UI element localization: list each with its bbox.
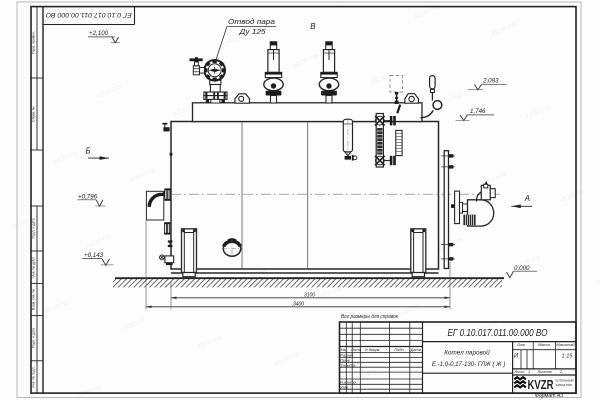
svg-text:Отвод пара: Отвод пара bbox=[228, 17, 275, 26]
svg-text:3100: 3100 bbox=[304, 292, 315, 298]
svg-text:Котел паровой: Котел паровой bbox=[444, 349, 490, 357]
svg-text:ЗАВОД РЭП: ЗАВОД РЭП bbox=[556, 383, 573, 387]
svg-text:Дата: Дата bbox=[410, 347, 422, 352]
svg-text:Изм: Изм bbox=[339, 347, 347, 352]
svg-text:+2,100: +2,100 bbox=[89, 30, 109, 37]
svg-text:0,000: 0,000 bbox=[514, 265, 530, 272]
svg-text:Перв. примен.: Перв. примен. bbox=[31, 31, 35, 54]
svg-text:Е -1,0-0,17-130- ГЛЖ ( Ж ): Е -1,0-0,17-130- ГЛЖ ( Ж ) bbox=[432, 361, 506, 368]
svg-text:Подп.: Подп. bbox=[394, 347, 404, 352]
svg-text:Масштаб: Масштаб bbox=[556, 342, 575, 347]
svg-text:Инв. № дубл.: Инв. № дубл. bbox=[31, 256, 35, 277]
svg-text:KVZR: KVZR bbox=[528, 378, 554, 392]
svg-text:Б: Б bbox=[86, 147, 91, 156]
svg-text:Подп. и дата: Подп. и дата bbox=[31, 218, 35, 238]
svg-text:Ду 125: Ду 125 bbox=[238, 27, 266, 36]
svg-text:Подп. и дата: Подп. и дата bbox=[31, 328, 35, 348]
svg-text:Все размеры для справок: Все размеры для справок bbox=[341, 314, 398, 320]
svg-text:Инв. № подл.: Инв. № подл. bbox=[31, 366, 35, 387]
svg-text:А: А bbox=[524, 194, 530, 203]
svg-text:Взам. инв. №: Взам. инв. № bbox=[31, 289, 35, 310]
svg-text:И: И bbox=[514, 354, 519, 360]
svg-text:Лит.: Лит. bbox=[516, 342, 526, 347]
svg-text:+0,143: +0,143 bbox=[84, 252, 104, 259]
svg-text:ЕГ 0.10.017.011.00.000 ВО: ЕГ 0.10.017.011.00.000 ВО bbox=[46, 11, 132, 18]
svg-text:Утв.: Утв. bbox=[340, 385, 349, 390]
svg-text:1:15: 1:15 bbox=[562, 354, 574, 360]
svg-text:3400: 3400 bbox=[293, 301, 304, 307]
svg-text:В: В bbox=[310, 22, 315, 31]
svg-text:Лист: Лист bbox=[514, 369, 526, 374]
svg-text:Справ. №: Справ. № bbox=[31, 106, 35, 122]
svg-text:Листов: Листов bbox=[537, 369, 552, 374]
svg-text:1,746: 1,746 bbox=[470, 108, 486, 115]
svg-text:Т.контр.: Т.контр. bbox=[340, 363, 356, 368]
svg-text:N докум.: N докум. bbox=[365, 347, 381, 352]
svg-text:Лист: Лист bbox=[350, 347, 362, 352]
svg-text:+0,796: +0,796 bbox=[78, 193, 98, 200]
svg-text:1: 1 bbox=[528, 369, 530, 374]
svg-text:2,093: 2,093 bbox=[482, 78, 499, 85]
svg-text:ЕГ 0.10.017.011.00.000 ВО: ЕГ 0.10.017.011.00.000 ВО bbox=[448, 327, 548, 339]
svg-text:Масса: Масса bbox=[538, 342, 550, 347]
svg-text:Формат А3: Формат А3 bbox=[535, 393, 563, 399]
